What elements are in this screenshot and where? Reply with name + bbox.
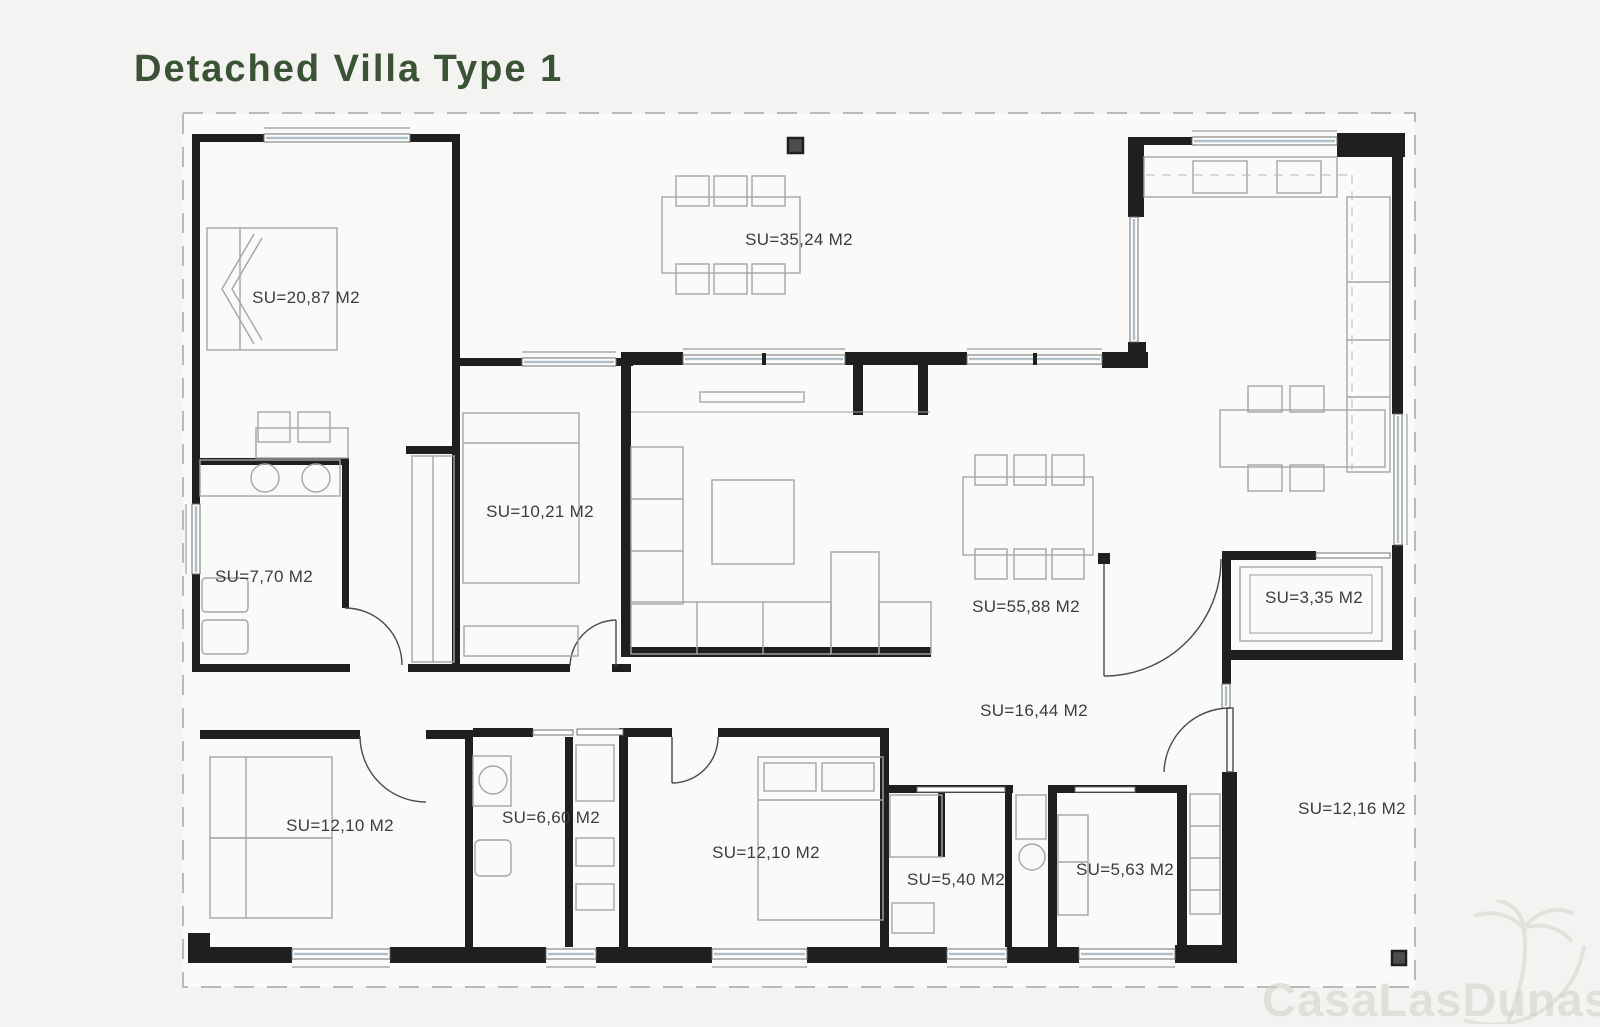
room-label-hallway: SU=16,44 M2 (980, 701, 1088, 720)
room-label-bathroom-1: SU=7,70 M2 (215, 567, 313, 586)
column-marker (788, 138, 803, 153)
column-marker (1392, 951, 1406, 965)
floor-plan: SU=20,87 M2 SU=35,24 M2 SU=10,21 M2 SU=7… (0, 0, 1600, 1024)
room-label-bedroom-3: SU=12,10 M2 (286, 816, 394, 835)
room-label-living-dining: SU=55,88 M2 (972, 597, 1080, 616)
room-label-bathroom-2: SU=6,60 M2 (502, 808, 600, 827)
watermark-text: CasaLasDunas (1262, 972, 1600, 1027)
room-label-master-bedroom: SU=20,87 M2 (252, 288, 360, 307)
room-label-side-terrace: SU=12,16 M2 (1298, 799, 1406, 818)
room-label-storage: SU=3,35 M2 (1265, 588, 1363, 607)
room-label-bedroom-4: SU=12,10 M2 (712, 843, 820, 862)
room-label-bathroom-3: SU=5,40 M2 (907, 870, 1005, 889)
room-label-laundry: SU=5,63 M2 (1076, 860, 1174, 879)
room-label-bedroom-2: SU=10,21 M2 (486, 502, 594, 521)
room-label-front-terrace: SU=35,24 M2 (745, 230, 853, 249)
